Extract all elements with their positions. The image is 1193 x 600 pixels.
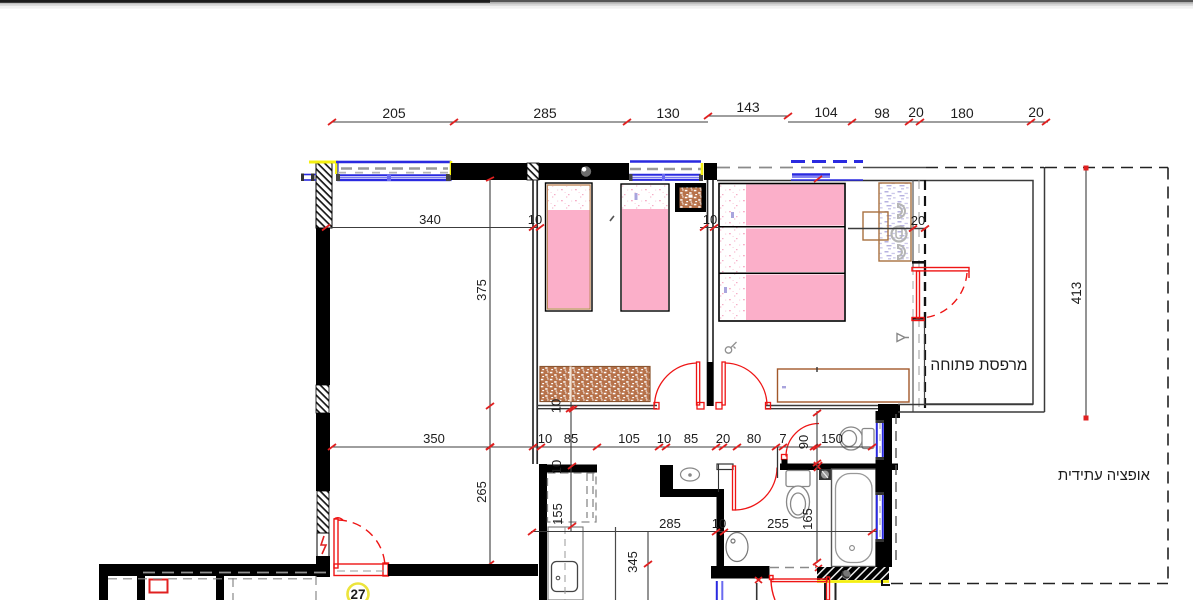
svg-text:413: 413 xyxy=(1069,282,1084,305)
svg-text:10: 10 xyxy=(549,460,564,474)
svg-text:מרפסת פתוחה: מרפסת פתוחה xyxy=(930,357,1027,374)
svg-text:345: 345 xyxy=(625,551,640,573)
svg-text:150: 150 xyxy=(821,431,843,446)
svg-text:20: 20 xyxy=(716,431,730,446)
svg-text:98: 98 xyxy=(874,105,890,121)
svg-text:104: 104 xyxy=(814,104,838,120)
svg-text:20: 20 xyxy=(1028,104,1044,120)
svg-text:20: 20 xyxy=(911,213,925,228)
svg-text:אופציה עתידית: אופציה עתידית xyxy=(1058,468,1151,484)
svg-text:7: 7 xyxy=(779,431,786,446)
svg-text:27: 27 xyxy=(350,587,365,600)
svg-text:350: 350 xyxy=(423,431,445,446)
svg-text:340: 340 xyxy=(419,212,441,227)
svg-text:10: 10 xyxy=(549,399,564,413)
svg-text:165: 165 xyxy=(800,508,815,530)
svg-text:130: 130 xyxy=(656,105,680,121)
svg-text:180: 180 xyxy=(950,105,974,121)
svg-text:20: 20 xyxy=(908,104,924,120)
svg-text:10: 10 xyxy=(538,431,552,446)
svg-text:255: 255 xyxy=(767,516,789,531)
svg-text:375: 375 xyxy=(474,279,489,301)
svg-text:10: 10 xyxy=(528,212,542,227)
svg-text:155: 155 xyxy=(550,503,565,525)
svg-text:90: 90 xyxy=(796,435,811,449)
svg-text:105: 105 xyxy=(618,431,640,446)
svg-text:265: 265 xyxy=(474,481,489,503)
svg-text:285: 285 xyxy=(659,516,681,531)
svg-text:205: 205 xyxy=(382,105,406,121)
svg-text:80: 80 xyxy=(747,431,761,446)
svg-text:10: 10 xyxy=(703,212,717,227)
svg-text:85: 85 xyxy=(684,431,698,446)
svg-text:285: 285 xyxy=(533,105,557,121)
svg-text:143: 143 xyxy=(736,99,760,115)
